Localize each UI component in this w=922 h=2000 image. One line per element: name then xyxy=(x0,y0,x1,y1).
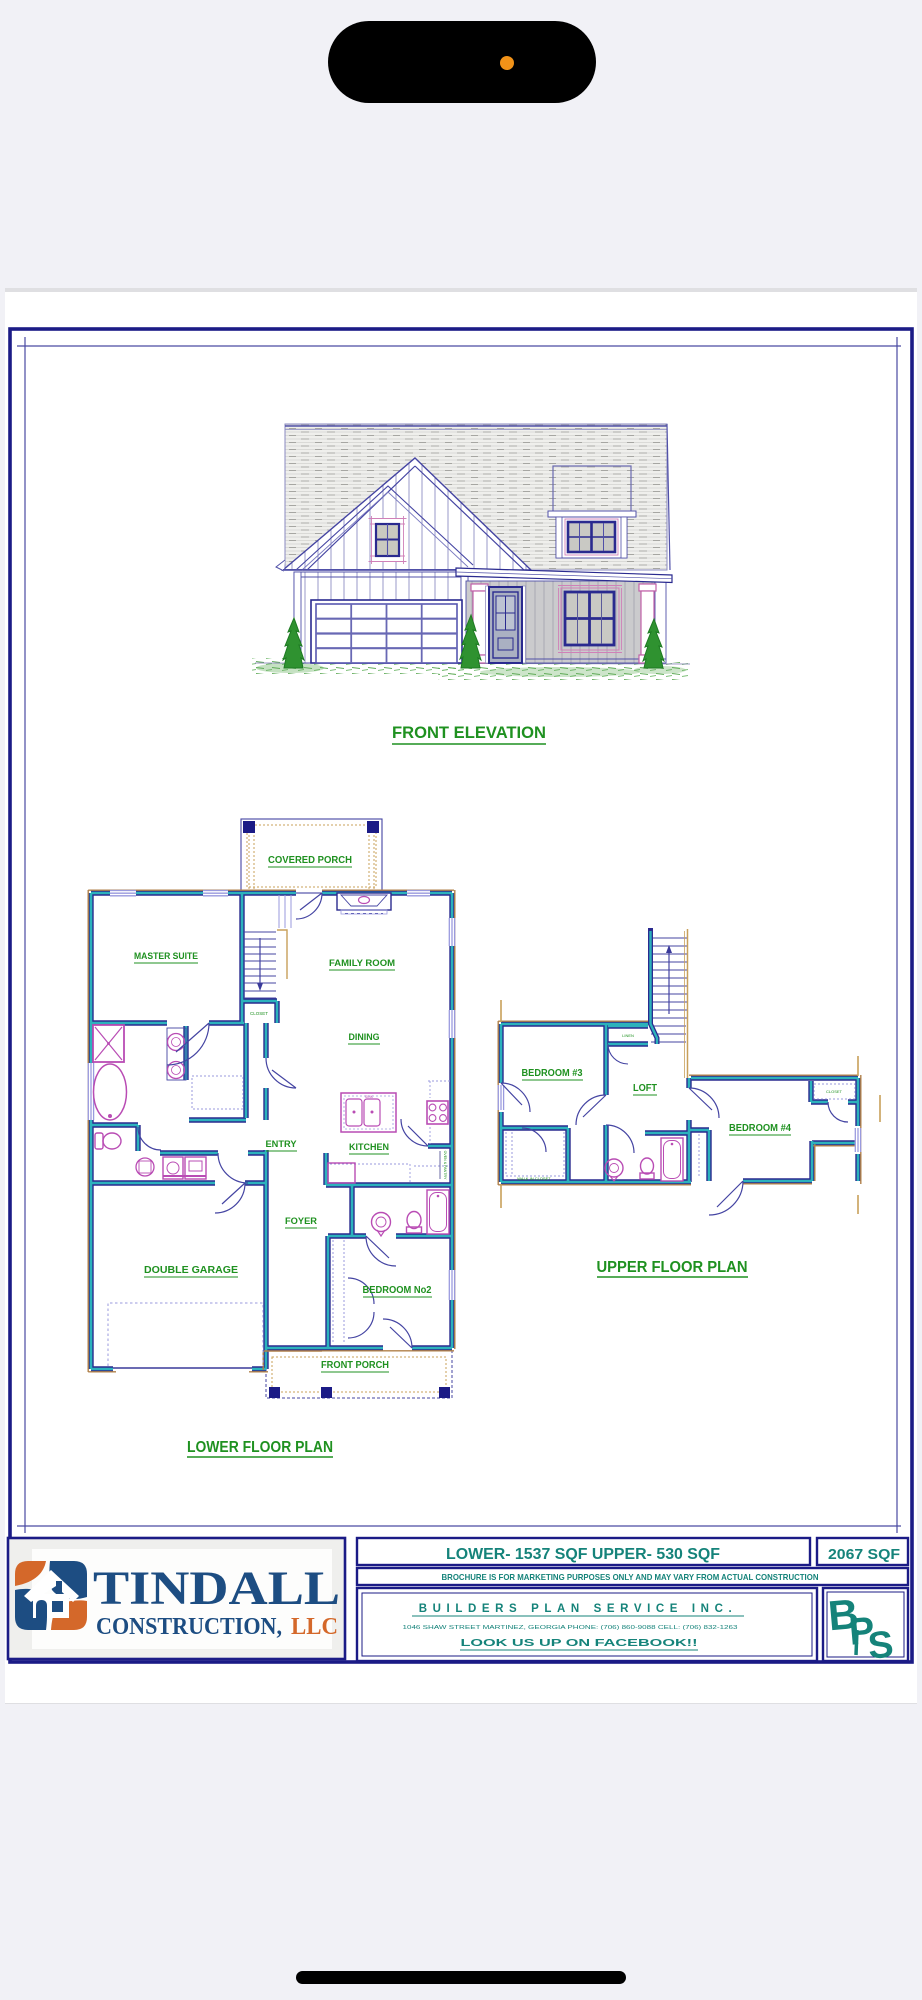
svg-text:BEDROOM #3: BEDROOM #3 xyxy=(522,1068,583,1079)
svg-text:DOUBLE GARAGE: DOUBLE GARAGE xyxy=(144,1264,238,1276)
svg-text:LOFT: LOFT xyxy=(633,1083,657,1094)
svg-text:WALK IN CLOSET: WALK IN CLOSET xyxy=(517,1176,551,1181)
svg-text:1046 SHAW STREET: 1046 SHAW STREET MARTINEZ, GEORGIA PHONE… xyxy=(403,1625,738,1631)
svg-text:LLC: LLC xyxy=(291,1614,338,1640)
svg-text:CLOSET: CLOSET xyxy=(250,1011,268,1016)
svg-text:UPPER FLOOR PLAN: UPPER FLOOR PLAN xyxy=(597,1259,748,1276)
svg-text:FRONT ELEVATION: FRONT ELEVATION xyxy=(392,724,546,742)
svg-text:LOWER- 1537 SQF UPPER- 530 SQ: LOWER- 1537 SQF UPPER- 530 SQF xyxy=(446,1546,720,1563)
svg-text:COVERED PORCH: COVERED PORCH xyxy=(268,855,352,866)
svg-text:FRONT PORCH: FRONT PORCH xyxy=(321,1360,389,1371)
svg-text:KITCHEN: KITCHEN xyxy=(349,1142,389,1153)
svg-text:SINK: SINK xyxy=(365,1095,374,1099)
svg-text:S: S xyxy=(866,1624,895,1668)
svg-text:BROCHURE IS FOR MARKETING PURP: BROCHURE IS FOR MARKETING PURPOSES ONLY … xyxy=(442,1572,819,1582)
svg-text:DINING: DINING xyxy=(349,1032,380,1043)
svg-text:LOWER FLOOR PLAN: LOWER FLOOR PLAN xyxy=(187,1439,333,1456)
svg-text:BEDROOM #4: BEDROOM #4 xyxy=(729,1123,791,1134)
svg-text:LINEN: LINEN xyxy=(622,1033,634,1038)
svg-text:LOOK US UP ON FACEBOOK!!: LOOK US UP ON FACEBOOK!! xyxy=(461,1637,698,1649)
svg-text:FOYER: FOYER xyxy=(285,1216,317,1227)
svg-text:OVEN & PANTRY: OVEN & PANTRY xyxy=(443,1151,447,1180)
svg-text:MASTER SUITE: MASTER SUITE xyxy=(134,951,198,962)
svg-text:CLOSET: CLOSET xyxy=(826,1089,843,1094)
svg-text:CONSTRUCTION,: CONSTRUCTION, xyxy=(96,1614,282,1640)
svg-text:ENTRY: ENTRY xyxy=(266,1139,298,1150)
svg-text:2067 SQF: 2067 SQF xyxy=(828,1547,900,1563)
svg-text:BUILDERS PLAN SERVICE INC.: BUILDERS PLAN SERVICE INC. xyxy=(419,1603,738,1615)
svg-text:BEDROOM No2: BEDROOM No2 xyxy=(363,1285,432,1296)
svg-text:TINDALL: TINDALL xyxy=(93,1562,340,1615)
svg-text:FAMILY ROOM: FAMILY ROOM xyxy=(329,958,395,969)
